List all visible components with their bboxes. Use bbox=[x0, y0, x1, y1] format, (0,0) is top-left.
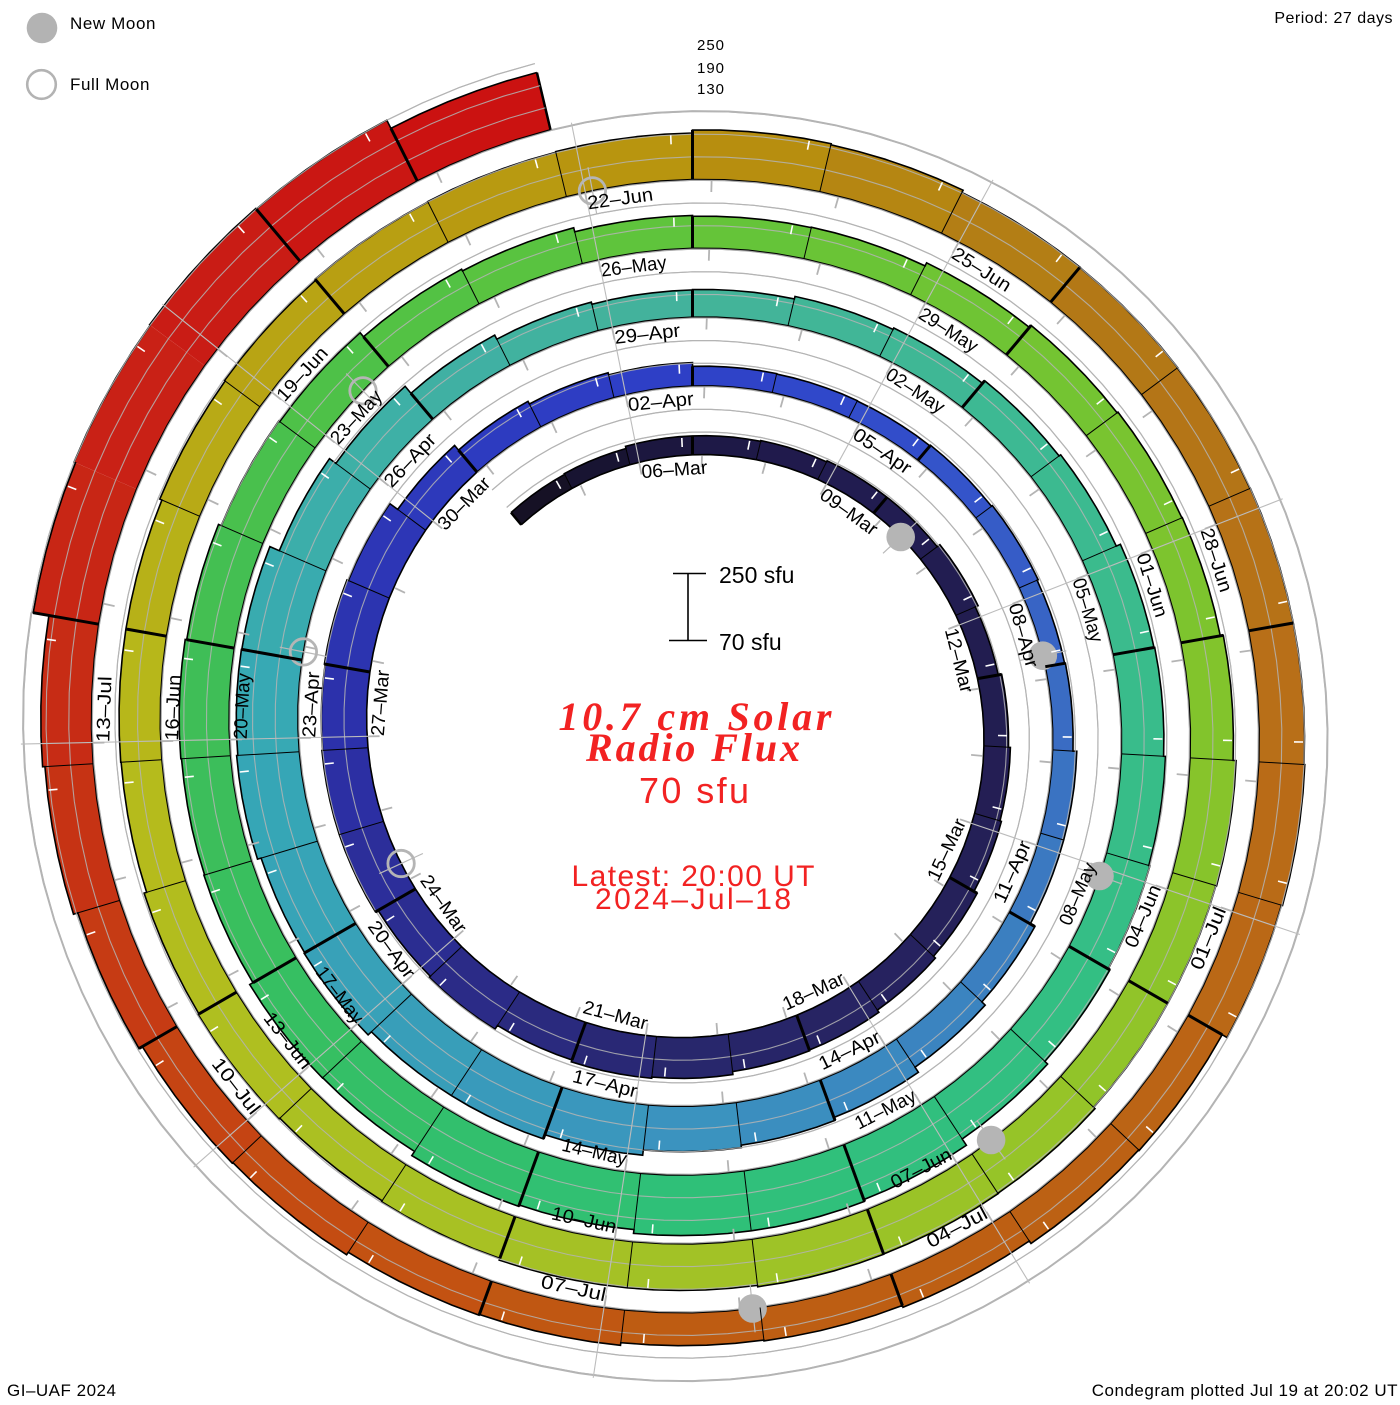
svg-text:Condegram plotted Jul 19 at 20: Condegram plotted Jul 19 at 20:02 UT bbox=[1092, 1381, 1398, 1400]
svg-text:New Moon: New Moon bbox=[70, 14, 156, 33]
svg-text:Radio Flux: Radio Flux bbox=[585, 725, 800, 770]
svg-text:20–May: 20–May bbox=[231, 672, 255, 739]
svg-text:Period: 27 days: Period: 27 days bbox=[1274, 10, 1393, 27]
svg-text:Full Moon: Full Moon bbox=[70, 75, 150, 94]
svg-text:23–Apr: 23–Apr bbox=[299, 670, 324, 738]
svg-text:13–Jul: 13–Jul bbox=[93, 676, 116, 743]
svg-text:130: 130 bbox=[697, 81, 725, 98]
svg-text:16–Jun: 16–Jun bbox=[162, 674, 186, 741]
svg-text:250: 250 bbox=[697, 37, 725, 54]
svg-text:190: 190 bbox=[697, 60, 725, 77]
svg-text:70 sfu: 70 sfu bbox=[719, 629, 782, 655]
svg-text:GI–UAF 2024: GI–UAF 2024 bbox=[7, 1381, 116, 1400]
svg-text:2024–Jul–18: 2024–Jul–18 bbox=[595, 883, 791, 916]
svg-text:250 sfu: 250 sfu bbox=[719, 562, 794, 588]
